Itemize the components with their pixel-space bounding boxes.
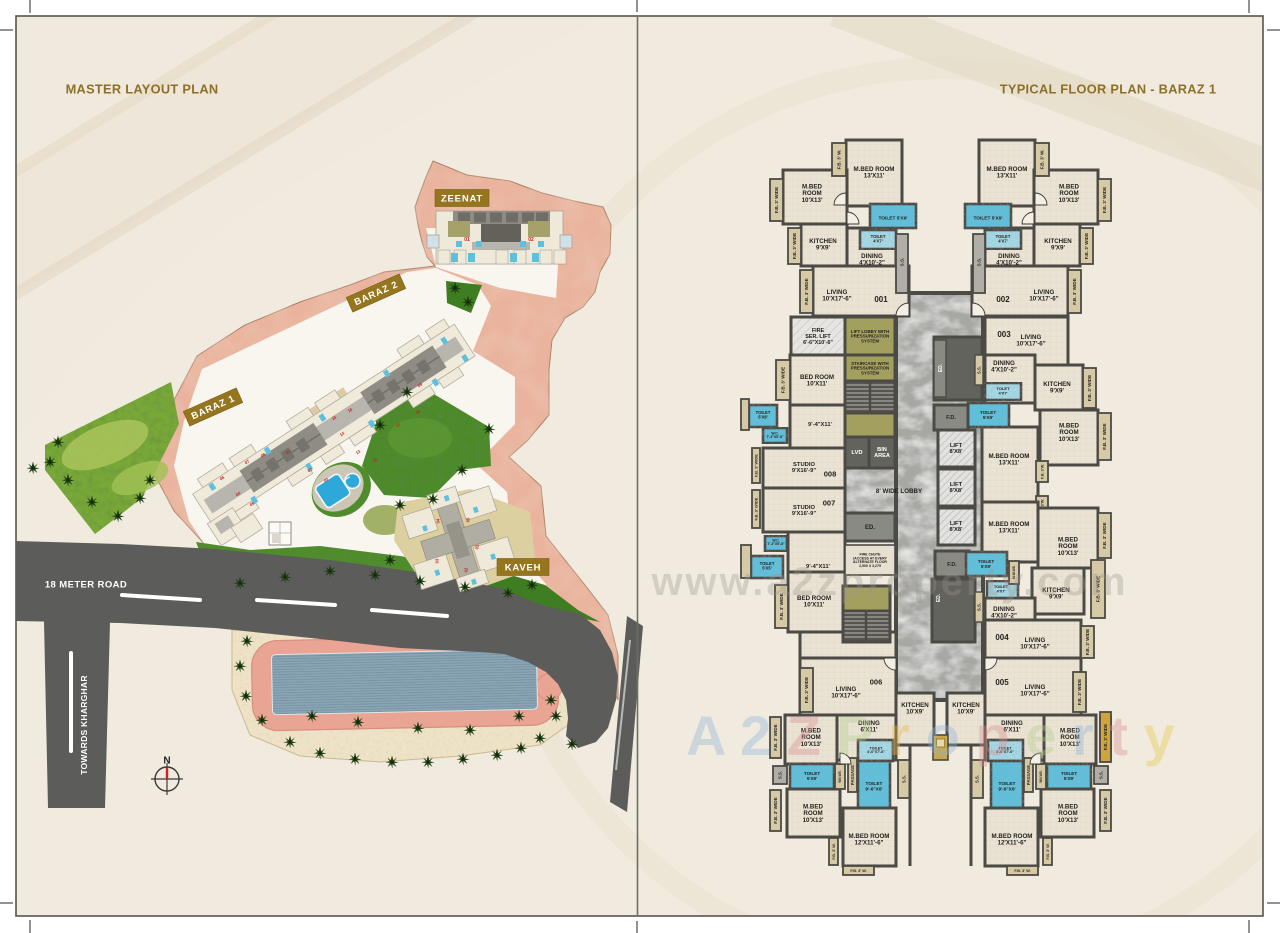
- svg-text:LVD: LVD: [851, 450, 862, 456]
- svg-text:05: 05: [466, 517, 471, 522]
- svg-text:PASSAGE: PASSAGE: [1026, 765, 1031, 785]
- svg-text:04: 04: [436, 518, 441, 523]
- svg-text:LIVING10'X17'-6": LIVING10'X17'-6": [822, 289, 851, 303]
- svg-text:M.BEDROOM10'X13': M.BEDROOM10'X13': [1058, 804, 1079, 824]
- svg-text:S.S.: S.S.: [900, 258, 905, 267]
- svg-text:01: 01: [475, 544, 480, 549]
- svg-text:F.B. 3' WIDE: F.B. 3' WIDE: [804, 278, 809, 304]
- svg-text:M.BED ROOM12'X11'-6": M.BED ROOM12'X11'-6": [849, 833, 890, 847]
- svg-text:F.B. 3' WIDE: F.B. 3' WIDE: [781, 367, 786, 393]
- svg-text:F.B. 3' WIDE: F.B. 3' WIDE: [1085, 629, 1090, 655]
- svg-text:F.B. 3' WIDE: F.B. 3' WIDE: [792, 233, 797, 259]
- svg-text:F.B. 3' WIDE: F.B. 3' WIDE: [1102, 423, 1107, 449]
- svg-text:TOILET 5'X9': TOILET 5'X9': [973, 216, 1002, 222]
- svg-text:F.B. 3' WIDE: F.B. 3' WIDE: [1087, 375, 1092, 401]
- svg-text:M.BED ROOM12'X11'-6": M.BED ROOM12'X11'-6": [992, 833, 1033, 847]
- svg-text:S.S.: S.S.: [1099, 771, 1104, 779]
- svg-text:S.S.: S.S.: [977, 603, 982, 611]
- svg-text:TYPICAL FLOOR PLAN - BARAZ 1: TYPICAL FLOOR PLAN - BARAZ 1: [1000, 82, 1216, 97]
- svg-text:DINING4'X10'-2": DINING4'X10'-2": [996, 253, 1022, 267]
- svg-text:A 2 Z P r o p e r t y: A 2 Z P r o p e r t y: [686, 704, 1175, 767]
- svg-text:9'-4"X11': 9'-4"X11': [808, 422, 832, 428]
- svg-text:F.D.: F.D.: [946, 415, 956, 421]
- svg-text:18 METER ROAD: 18 METER ROAD: [45, 579, 127, 590]
- svg-text:007: 007: [823, 499, 836, 508]
- svg-text:S.S.: S.S.: [902, 775, 907, 783]
- svg-text:TOILET 5'X9': TOILET 5'X9': [878, 216, 907, 222]
- svg-text:ZEENAT: ZEENAT: [441, 193, 483, 204]
- svg-text:STUDIO9'X16'-9": STUDIO9'X16'-9": [792, 462, 816, 474]
- svg-text:M.BEDROOM10'X13': M.BEDROOM10'X13': [1058, 537, 1079, 557]
- svg-text:ED.: ED.: [865, 525, 875, 531]
- svg-text:F.B. 3' WIDE: F.B. 3' WIDE: [1072, 278, 1077, 304]
- svg-text:M.BEDROOM10'X13': M.BEDROOM10'X13': [1059, 423, 1080, 443]
- svg-text:001: 001: [874, 295, 888, 304]
- svg-text:006: 006: [870, 678, 883, 687]
- svg-text:03: 03: [435, 558, 440, 563]
- svg-text:S.S.: S.S.: [975, 775, 980, 783]
- svg-text:F.B. 3' WIDE: F.B. 3' WIDE: [753, 454, 758, 477]
- svg-text:004: 004: [995, 633, 1009, 642]
- svg-text:WN.WB.: WN.WB.: [838, 770, 842, 783]
- svg-text:M.BEDROOM10'X13': M.BEDROOM10'X13': [1059, 184, 1080, 204]
- svg-text:S.S.: S.S.: [778, 771, 783, 779]
- svg-text:F.B. 3' WIDE: F.B. 3' WIDE: [773, 797, 778, 823]
- svg-text:003: 003: [997, 330, 1011, 339]
- svg-text:F.B. 3' W.: F.B. 3' W.: [1040, 150, 1045, 170]
- svg-text:DINING4'X10'-2": DINING4'X10'-2": [859, 253, 885, 267]
- svg-text:M.BEDROOM10'X13': M.BEDROOM10'X13': [803, 804, 824, 824]
- svg-text:S.S.: S.S.: [977, 366, 982, 374]
- svg-text:LIFT8'X8': LIFT8'X8': [949, 521, 963, 533]
- svg-text:DINING4'X10'-2": DINING4'X10'-2": [991, 606, 1017, 620]
- svg-text:www.a2zproperty.com: www.a2zproperty.com: [650, 560, 1128, 604]
- svg-text:ED.: ED.: [938, 363, 944, 372]
- svg-text:02: 02: [464, 567, 469, 572]
- svg-text:F.B. 3' W.: F.B. 3' W.: [850, 869, 866, 873]
- svg-text:F.B. 3'W.: F.B. 3'W.: [1040, 464, 1044, 479]
- svg-text:F.B. 3' W.: F.B. 3' W.: [837, 150, 842, 170]
- svg-text:F.B. 3' WIDE: F.B. 3' WIDE: [774, 187, 779, 213]
- svg-text:002: 002: [996, 295, 1010, 304]
- svg-text:TOILET9'-6"X6': TOILET9'-6"X6': [865, 781, 882, 792]
- svg-text:LIFT8'X8': LIFT8'X8': [949, 443, 963, 455]
- svg-text:N: N: [163, 756, 170, 767]
- svg-text:LIVING10'X17'-6": LIVING10'X17'-6": [831, 686, 860, 700]
- svg-text:LIVING10'X17'-6": LIVING10'X17'-6": [1016, 334, 1045, 348]
- svg-text:F.B. 3' WIDE: F.B. 3' WIDE: [804, 677, 809, 703]
- svg-text:M.BEDROOM10'X13': M.BEDROOM10'X13': [802, 184, 823, 204]
- svg-text:F.B. 3' WIDE: F.B. 3' WIDE: [1102, 522, 1107, 548]
- svg-text:LIVING10'X17'-6": LIVING10'X17'-6": [1020, 684, 1049, 698]
- svg-text:F.B. 3' WIDE: F.B. 3' WIDE: [1102, 187, 1107, 213]
- svg-text:005: 005: [995, 678, 1009, 687]
- svg-text:KAVEH: KAVEH: [505, 562, 542, 573]
- svg-text:LIVING10'X17'-6": LIVING10'X17'-6": [1020, 637, 1049, 651]
- svg-text:01: 01: [464, 237, 470, 243]
- svg-text:S.S.: S.S.: [977, 258, 982, 267]
- svg-text:02: 02: [528, 237, 534, 243]
- svg-text:F.B. 3' WIDE: F.B. 3' WIDE: [1103, 797, 1108, 823]
- svg-text:F.B. 3' WIDE: F.B. 3' WIDE: [1084, 233, 1089, 259]
- svg-text:TOILET9'-6"X6': TOILET9'-6"X6': [998, 781, 1015, 792]
- svg-text:DINING4'X10'-2": DINING4'X10'-2": [991, 360, 1017, 374]
- svg-text:WN.WB.: WN.WB.: [1039, 770, 1043, 783]
- svg-text:PASSAGE: PASSAGE: [850, 765, 855, 785]
- svg-text:F.B. 3' WIDE: F.B. 3' WIDE: [1077, 679, 1082, 705]
- svg-text:LIFT8'X8': LIFT8'X8': [949, 482, 963, 494]
- svg-text:MASTER LAYOUT PLAN: MASTER LAYOUT PLAN: [66, 82, 219, 97]
- svg-text:F.B. 3' W.: F.B. 3' W.: [832, 843, 836, 859]
- svg-text:F.B. 3' W.: F.B. 3' W.: [1014, 869, 1030, 873]
- svg-text:F.B. 3' W.: F.B. 3' W.: [1046, 843, 1050, 859]
- svg-text:LIVING10'X17'-6": LIVING10'X17'-6": [1029, 289, 1058, 303]
- svg-text:STUDIO9'X16'-9": STUDIO9'X16'-9": [792, 505, 816, 517]
- svg-text:TOWARDS KHARGHAR: TOWARDS KHARGHAR: [79, 675, 89, 775]
- svg-text:8' WIDE LOBBY: 8' WIDE LOBBY: [876, 488, 923, 495]
- svg-text:008: 008: [824, 470, 837, 479]
- svg-text:F.B. 3' WIDE: F.B. 3' WIDE: [753, 497, 758, 520]
